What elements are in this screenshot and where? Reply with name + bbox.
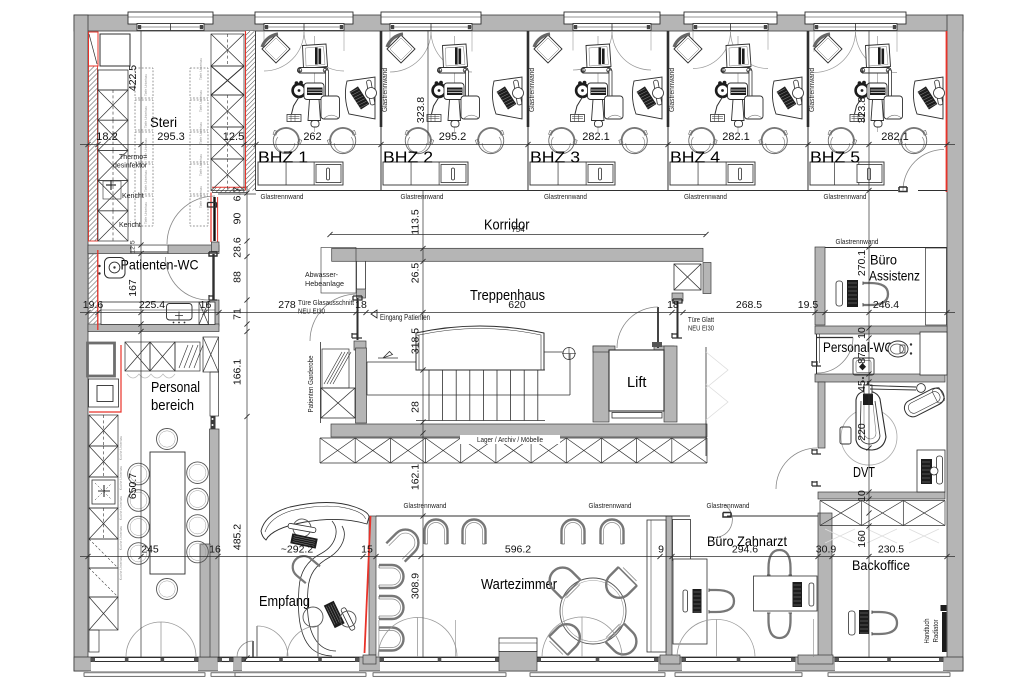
svg-text:NEU EI30: NEU EI30 — [298, 307, 325, 316]
svg-text:6.7: 6.7 — [232, 187, 244, 202]
svg-text:Thermo=: Thermo= — [119, 154, 147, 161]
svg-text:270.1: 270.1 — [856, 250, 868, 276]
svg-text:88: 88 — [232, 271, 244, 283]
svg-text:Patienten-WC: Patienten-WC — [121, 257, 199, 273]
svg-text:Lager / Archiv / Möbelle: Lager / Archiv / Möbelle — [477, 435, 543, 444]
svg-text:Tiefe Unterbau: Tiefe Unterbau — [144, 106, 148, 128]
svg-text:16: 16 — [200, 299, 212, 311]
svg-text:Hebeanlage: Hebeanlage — [305, 279, 344, 288]
svg-text:Glastrennwand: Glastrennwand — [401, 192, 444, 201]
svg-text:Lift: Lift — [627, 374, 647, 391]
svg-text:10: 10 — [856, 490, 868, 502]
svg-text:90: 90 — [232, 213, 244, 225]
svg-text:Tiefe Unterbau: Tiefe Unterbau — [199, 186, 203, 208]
svg-text:BHZ 4: BHZ 4 — [670, 150, 720, 167]
svg-text:Eingang Patienten: Eingang Patienten — [380, 313, 430, 322]
svg-text:162.1: 162.1 — [410, 464, 422, 490]
svg-text:Glastrennwand: Glastrennwand — [404, 501, 447, 510]
svg-text:12.5: 12.5 — [223, 131, 244, 143]
svg-text:Kuche Unterbau: Kuche Unterbau — [119, 466, 123, 491]
svg-text:BHZ 2: BHZ 2 — [383, 150, 433, 167]
svg-text:Personal: Personal — [151, 379, 200, 396]
svg-text:282.1: 282.1 — [881, 131, 909, 143]
svg-text:754: 754 — [511, 225, 525, 234]
svg-text:Glastrennwand: Glastrennwand — [527, 68, 536, 112]
svg-text:16: 16 — [209, 544, 221, 556]
svg-text:18: 18 — [667, 299, 679, 311]
svg-text:12.5: 12.5 — [130, 240, 137, 253]
svg-text:9: 9 — [658, 544, 664, 556]
svg-text:Tiefe Unterbau: Tiefe Unterbau — [199, 154, 203, 176]
svg-text:BHZ 3: BHZ 3 — [530, 150, 580, 167]
svg-text:DVT: DVT — [853, 465, 875, 481]
svg-text:Glastrennwand: Glastrennwand — [589, 501, 632, 510]
svg-text:BHZ 5: BHZ 5 — [810, 150, 860, 167]
svg-text:Glastrennwand: Glastrennwand — [380, 68, 389, 112]
svg-text:BHZ 1: BHZ 1 — [258, 150, 308, 167]
svg-text:bereich: bereich — [151, 397, 194, 414]
svg-text:Glastrennwand: Glastrennwand — [261, 192, 304, 201]
svg-text:26.5: 26.5 — [410, 263, 422, 284]
svg-text:282.1: 282.1 — [722, 131, 750, 143]
svg-text:Tiefe Unterbau: Tiefe Unterbau — [144, 202, 148, 224]
svg-text:278: 278 — [278, 299, 296, 311]
svg-text:10: 10 — [856, 327, 868, 339]
svg-text:Tiefe Unterbau: Tiefe Unterbau — [144, 170, 148, 192]
svg-text:Glastrennwand: Glastrennwand — [684, 192, 727, 201]
svg-text:422.5: 422.5 — [127, 65, 139, 91]
svg-text:45: 45 — [856, 380, 868, 392]
svg-text:~292.2: ~292.2 — [281, 544, 314, 556]
svg-text:71: 71 — [232, 308, 244, 320]
svg-text:160: 160 — [856, 530, 868, 548]
svg-text:Patienten Garderobe: Patienten Garderobe — [306, 356, 315, 413]
svg-text:268.5: 268.5 — [736, 299, 762, 311]
svg-text:Glastrennwand: Glastrennwand — [544, 192, 587, 201]
svg-text:Tiefe Unterbau: Tiefe Unterbau — [199, 58, 203, 80]
svg-text:Kuche Unterbau: Kuche Unterbau — [119, 496, 123, 521]
svg-text:295.2: 295.2 — [439, 131, 467, 143]
svg-text:220: 220 — [856, 423, 868, 441]
svg-text:Kericht: Kericht — [119, 222, 141, 229]
svg-text:485.2: 485.2 — [232, 524, 244, 550]
svg-text:Wartezimmer: Wartezimmer — [481, 576, 557, 593]
svg-text:650.7: 650.7 — [127, 473, 139, 499]
svg-text:desinfektor: desinfektor — [113, 163, 148, 170]
svg-text:230.5: 230.5 — [878, 544, 904, 556]
svg-text:19.5: 19.5 — [798, 299, 819, 311]
svg-text:15: 15 — [361, 544, 373, 556]
svg-text:323.8: 323.8 — [415, 97, 427, 123]
svg-text:NEU EI30: NEU EI30 — [688, 324, 714, 333]
svg-text:295.3: 295.3 — [157, 131, 185, 143]
svg-text:28.6: 28.6 — [232, 237, 244, 258]
svg-text:Kuche Unterbau: Kuche Unterbau — [119, 436, 123, 461]
svg-text:Radiator: Radiator — [931, 619, 940, 643]
svg-text:Abwasser-: Abwasser- — [305, 270, 339, 279]
svg-text:323.8: 323.8 — [856, 97, 868, 123]
svg-text:18: 18 — [355, 299, 367, 311]
svg-text:Glastrennwand: Glastrennwand — [667, 68, 676, 112]
svg-text:Handtuch: Handtuch — [922, 619, 931, 644]
svg-text:87: 87 — [856, 352, 868, 364]
svg-text:Backoffice: Backoffice — [852, 557, 910, 573]
svg-text:Tiefe Unterbau: Tiefe Unterbau — [199, 122, 203, 144]
svg-text:596.2: 596.2 — [505, 544, 531, 556]
svg-text:166.1: 166.1 — [232, 359, 244, 385]
svg-text:620: 620 — [508, 299, 526, 311]
svg-text:Assistenz: Assistenz — [869, 268, 920, 284]
svg-text:282.1: 282.1 — [582, 131, 610, 143]
svg-text:225.4: 225.4 — [139, 299, 165, 311]
svg-text:Glastrennwand: Glastrennwand — [836, 237, 879, 246]
svg-text:308.9: 308.9 — [410, 573, 422, 599]
svg-text:Tiefe Unterbau: Tiefe Unterbau — [144, 74, 148, 96]
svg-text:28: 28 — [410, 401, 422, 413]
svg-text:Glastrennwand: Glastrennwand — [707, 501, 750, 510]
svg-text:Kuche Unterbau: Kuche Unterbau — [119, 556, 123, 581]
svg-text:Büro: Büro — [870, 252, 897, 268]
svg-text:30.9: 30.9 — [816, 544, 837, 556]
svg-text:18.2: 18.2 — [96, 131, 117, 143]
svg-text:Glastrennwand: Glastrennwand — [807, 68, 816, 112]
svg-text:245: 245 — [141, 544, 159, 556]
svg-text:Empfang: Empfang — [259, 593, 310, 610]
svg-text:294.6: 294.6 — [732, 544, 758, 556]
svg-text:19.6: 19.6 — [83, 299, 104, 311]
svg-text:Kericht: Kericht — [122, 193, 144, 200]
svg-text:Tiefe Unterbau: Tiefe Unterbau — [199, 90, 203, 112]
svg-text:113.5: 113.5 — [410, 209, 422, 235]
svg-text:Glastrennwand: Glastrennwand — [824, 192, 867, 201]
svg-text:246.4: 246.4 — [873, 299, 899, 311]
svg-text:Kuche Unterbau: Kuche Unterbau — [119, 526, 123, 551]
svg-text:Steri: Steri — [150, 114, 177, 130]
svg-text:262: 262 — [303, 131, 321, 143]
svg-text:167: 167 — [127, 279, 139, 297]
svg-text:318.5: 318.5 — [410, 328, 422, 354]
